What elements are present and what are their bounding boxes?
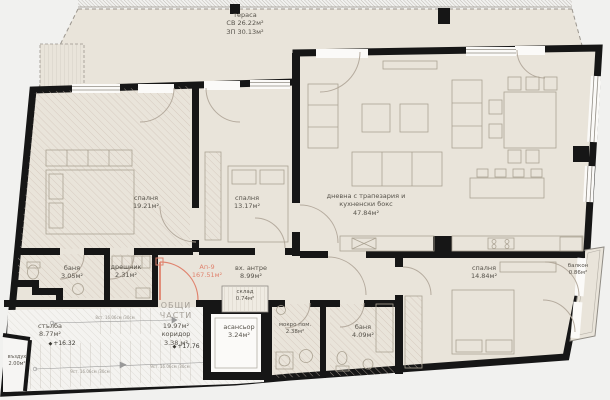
room-label-bath1: баня 3.05м² [61, 264, 83, 281]
room-name: въздух [8, 354, 27, 361]
room-name: вх. антре [235, 264, 267, 272]
room-area: 2.00м² [8, 361, 27, 368]
stair-dim-top: 8ст. 16.06см /30см [95, 315, 134, 320]
room-label-elevator: асансьор 3.24м² [223, 323, 254, 340]
room-label-bedroom2: спалня 13.17м² [234, 194, 260, 211]
terrace-cb-area: СВ 26.22м² [226, 19, 263, 27]
room-area: 0.86м² [568, 270, 589, 277]
level-value: +17.76 [177, 343, 199, 350]
room-label-wetroom: мокро пом. 2.38м² [279, 322, 311, 336]
room-name: асансьор [223, 323, 254, 331]
level-marker-icon: ◆ [48, 341, 52, 347]
room-area: 0.74м² [236, 296, 255, 303]
room-area: 19.21м² [133, 202, 159, 210]
common-parts-label: ОБЩИ ЧАСТИ 19.97м² коридор 3.38 м² [160, 301, 192, 347]
level-marker-icon: ◆ [172, 344, 176, 350]
room-name: спалня [234, 194, 260, 202]
room-name: стълба [38, 322, 62, 330]
room-label-bath2: баня 4.09м² [352, 323, 374, 340]
room-label-bedroom3: спалня 14.84м² [471, 264, 497, 281]
apartment-label: Ап-9 167.51м² [192, 263, 222, 280]
room-name: баня [352, 323, 374, 331]
stair-dim-bottom1: 9ст. 16.06см /30см [70, 369, 109, 374]
apartment-id: Ап-9 [192, 263, 222, 271]
room-area: 13.17м² [234, 202, 260, 210]
level-marker-corridor: ◆+17.76 [172, 343, 199, 351]
terrace-post [438, 8, 450, 24]
corridor-name: коридор [160, 330, 192, 338]
room-area: 3.05м² [61, 272, 83, 280]
floor-plan: тераса СВ 26.22м² ЗП 30.13м² спалня 19.2… [0, 0, 610, 400]
room-area: 14.84м² [471, 272, 497, 280]
apartment-area: 167.51м² [192, 271, 222, 279]
elevator-shaft [203, 306, 269, 380]
room-area: 4.09м² [352, 331, 374, 339]
room-area: 3.24м² [223, 331, 254, 339]
level-marker-stairs: ◆+16.32 [48, 340, 75, 348]
room-area: 47.84м² [327, 209, 406, 217]
room-name: дневна с трапезария и [327, 192, 406, 200]
common-title: ОБЩИ [160, 301, 192, 311]
room-area: 2.31м² [111, 271, 142, 279]
room-label-entry: вх. антре 8.99м² [235, 264, 267, 281]
room-area: 8.77м² [38, 330, 62, 338]
roof-edge-band [78, 0, 572, 7]
room-name: спалня [471, 264, 497, 272]
room-label-storage: склад 0.74м² [236, 289, 255, 303]
room-name2: кухненски бокс [327, 200, 406, 208]
common-title2: ЧАСТИ [160, 311, 192, 321]
room-name: дрешник [111, 263, 142, 271]
terrace-label: тераса СВ 26.22м² ЗП 30.13м² [226, 11, 263, 36]
room-name: баня [61, 264, 83, 272]
room-area: 2.38м² [279, 329, 311, 336]
terrace-name: тераса [226, 11, 263, 19]
room-label-air: въздух 2.00м² [8, 354, 27, 367]
stair-dim-bottom2: 9ст. 16.06см /30см [150, 364, 189, 369]
level-value: +16.32 [53, 340, 75, 347]
room-label-closet: дрешник 2.31м² [111, 263, 142, 280]
floor-plan-drawing [0, 0, 610, 400]
room-name: спалня [133, 194, 159, 202]
room-label-bedroom1: спалня 19.21м² [133, 194, 159, 211]
room-label-stairs: стълба 8.77м² [38, 322, 62, 339]
common-area-value: 19.97м² [160, 322, 192, 330]
room-area: 8.99м² [235, 272, 267, 280]
terrace-zp-area: ЗП 30.13м² [226, 28, 263, 36]
room-label-living: дневна с трапезария и кухненски бокс 47.… [327, 192, 406, 217]
room-label-balcony: балкон 0.86м² [568, 263, 589, 277]
